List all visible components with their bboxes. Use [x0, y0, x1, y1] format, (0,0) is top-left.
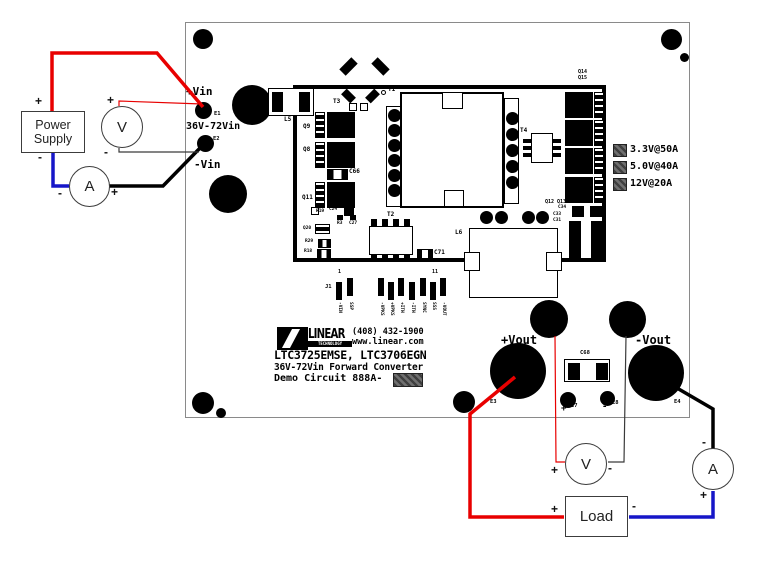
- rating-12v: 12V@20A: [630, 179, 672, 189]
- l5-label: L5: [284, 117, 291, 123]
- j1-pin: [440, 278, 446, 296]
- t1-pin: [506, 160, 519, 173]
- r18-resistor: [317, 249, 331, 259]
- t4-lead: [552, 146, 561, 150]
- j1-pin-name: -VIN: [337, 302, 342, 313]
- t1-pin: [506, 112, 519, 125]
- t2-pad: [404, 219, 410, 226]
- t4-lead: [523, 146, 532, 150]
- c66-capacitor: [327, 169, 348, 180]
- website-label: www.linear.com: [352, 338, 424, 347]
- rating-5v: 5.0V@40A: [630, 162, 678, 172]
- r29-label: R29: [305, 240, 313, 245]
- t2-pad: [393, 255, 399, 262]
- t4-lead: [523, 153, 532, 157]
- via-top-right: [680, 53, 689, 62]
- t2-pad: [382, 255, 388, 262]
- mounting-hole-top-left: [193, 29, 213, 49]
- t4-lead: [523, 139, 532, 143]
- e7-plus-sign: +: [561, 405, 566, 414]
- description-label: 36V-72Vin Forward Converter: [274, 363, 423, 373]
- t1-bottom-tab: [444, 190, 464, 207]
- logo-slash: [282, 329, 300, 348]
- j1-pin: [430, 282, 436, 300]
- e8-minus-sign: -: [602, 403, 607, 412]
- c33-label: C33: [553, 213, 561, 218]
- c66-label: C66: [349, 169, 360, 175]
- c27-capacitor: [350, 215, 356, 220]
- e8-label: E8: [612, 401, 619, 407]
- demo-revision-box: [393, 373, 423, 387]
- input-ammeter: A: [69, 166, 110, 207]
- j1-pin-name: -ITH: [410, 302, 415, 313]
- power-supply-box: Power Supply: [21, 111, 85, 153]
- load-plus-sign: +: [551, 503, 558, 515]
- via: [522, 211, 535, 224]
- t1-pin: [506, 176, 519, 189]
- t4-lead: [552, 153, 561, 157]
- load-label: Load: [580, 508, 613, 525]
- t1-top-tab: [442, 92, 463, 109]
- t2-label: T2: [387, 212, 394, 218]
- j1-pin: [347, 278, 353, 296]
- input-capacitor: [232, 85, 272, 125]
- input-voltmeter-label: V: [117, 119, 127, 136]
- via: [480, 211, 493, 224]
- j1-label: J1: [325, 285, 332, 291]
- supply-plus-sign: +: [35, 95, 42, 107]
- j1-pin-name: +VPKS: [389, 302, 394, 316]
- j1-pin-name: +ITH: [399, 302, 404, 313]
- e1-label: E1: [214, 112, 221, 118]
- rating-swatch: [613, 161, 627, 174]
- input-voltmeter-minus: -: [104, 146, 108, 158]
- logo-linear-text: LINEAR: [308, 328, 345, 341]
- t2-pad: [404, 255, 410, 262]
- c27-label: C27: [349, 222, 357, 227]
- q9-pads: [315, 112, 325, 138]
- t2-pad: [371, 255, 377, 262]
- vout-minus-label: -Vout: [635, 334, 671, 346]
- j1-pin: [388, 282, 394, 300]
- rating-swatch: [613, 178, 627, 191]
- l6-tab-right: [546, 252, 562, 271]
- vin-plus-label: +Vin: [186, 86, 213, 97]
- j1-pin-name: SYNC: [421, 302, 426, 313]
- l5-pad-left: [272, 92, 283, 112]
- t4-label: T4: [520, 128, 527, 134]
- input-capacitor-2: [209, 175, 247, 213]
- phone-label: (408) 432-1900: [352, 328, 424, 337]
- t4-ic: [531, 133, 553, 163]
- power-supply-label-1: Power: [35, 118, 70, 132]
- output-mosfet: [565, 120, 593, 146]
- output-voltmeter-minus: -: [608, 462, 612, 474]
- input-ammeter-label: A: [84, 178, 94, 195]
- vin-minus-label: -Vin: [194, 159, 221, 170]
- e7-label: E7: [571, 404, 578, 410]
- e3-label: E3: [489, 400, 498, 406]
- load-box: Load: [565, 496, 628, 537]
- inductor-l6: [469, 228, 558, 298]
- t1-pin: [506, 128, 519, 141]
- output-ammeter-label: A: [708, 461, 718, 478]
- mounting-hole-bottom-left: [192, 392, 214, 414]
- e3-terminal: [490, 343, 546, 399]
- r29-resistor: [318, 239, 331, 248]
- input-voltmeter: V: [101, 106, 143, 148]
- demo-circuit-label: Demo Circuit 888A-: [274, 374, 382, 384]
- supply-positive-wire: [52, 53, 203, 111]
- e2-label: E2: [213, 137, 220, 143]
- j1-pin: [409, 282, 415, 300]
- q9-mosfet: [327, 112, 355, 138]
- input-ammeter-minus: -: [58, 187, 62, 199]
- output-ammeter-minus: -: [702, 436, 706, 448]
- j1-pin-name: SSS: [431, 302, 436, 310]
- e4-label: E4: [673, 400, 682, 406]
- t4-lead: [552, 139, 561, 143]
- input-ammeter-plus: +: [111, 186, 118, 198]
- supply-negative-wire: [53, 152, 69, 186]
- t2-pad: [371, 219, 377, 226]
- t1-pin: [506, 144, 519, 157]
- rating-swatch: [613, 144, 627, 157]
- output-mosfet: [565, 92, 593, 118]
- c71-label: C71: [434, 250, 445, 256]
- c71-capacitor: [417, 249, 433, 259]
- q8-pads: [315, 142, 325, 168]
- part-numbers-label: LTC3725EMSE, LTC3706EGN: [274, 350, 426, 362]
- rating-3v3: 3.3V@50A: [630, 145, 678, 155]
- q20-label: Q20: [303, 227, 311, 232]
- output-voltmeter: V: [565, 443, 607, 485]
- c68-label: C68: [580, 351, 590, 357]
- q8-label: Q8: [303, 147, 310, 153]
- e2-terminal: [197, 135, 214, 152]
- via: [495, 211, 508, 224]
- q12-mosfet: [572, 206, 584, 217]
- c31-label: C31: [553, 219, 561, 224]
- supply-minus-sign: -: [38, 151, 42, 163]
- q13-mosfet: [590, 206, 602, 217]
- q11-label: Q11: [302, 195, 313, 201]
- output-mosfet-pads: [594, 120, 604, 146]
- output-mosfet-pads: [594, 148, 604, 174]
- t1-label: T1: [388, 87, 395, 93]
- demo-board-test-setup-diagram: +Vin E1 36V-72Vin E2 -Vin L5 T3 Q9 Q8 C6…: [0, 0, 777, 569]
- c24-label: C24: [329, 208, 337, 213]
- e4-terminal: [628, 345, 684, 401]
- t3-pad-2: [360, 103, 368, 111]
- r3-resistor: [337, 215, 343, 220]
- t2-ic: [369, 226, 413, 255]
- via-bottom-left: [216, 408, 226, 418]
- c68-pad-left: [568, 363, 580, 380]
- t2-pad: [382, 219, 388, 226]
- input-voltmeter-plus: +: [107, 94, 114, 106]
- t2-pad: [393, 219, 399, 226]
- c68-pad-right: [596, 363, 608, 380]
- r18-label: R18: [304, 250, 312, 255]
- r19-label: R19: [316, 210, 324, 215]
- l6-label: L6: [455, 230, 462, 236]
- j1-pin-name: -VOUT: [441, 302, 446, 316]
- output-mosfet-pads: [594, 92, 604, 118]
- output-ammeter: A: [692, 448, 734, 490]
- output-voltmeter-label: V: [581, 456, 591, 473]
- output-voltmeter-plus: +: [551, 464, 558, 476]
- output-ammeter-plus: +: [700, 489, 707, 501]
- j1-pin1-label: 1: [338, 270, 341, 275]
- logo-technology-text: TECHNOLOGY: [318, 342, 342, 346]
- e1-terminal: [195, 102, 212, 119]
- j1-pin11-label: 11: [432, 270, 438, 275]
- mounting-hole-top-right: [661, 29, 682, 50]
- q15-label: Q15: [578, 76, 587, 81]
- t3-label: T3: [333, 99, 340, 105]
- output-via: [453, 391, 475, 413]
- load-minus-sign: -: [632, 500, 636, 512]
- l5-pad-right: [299, 92, 310, 112]
- q9-label: Q9: [303, 124, 310, 130]
- j1-pin-name: SSP: [348, 302, 353, 310]
- j1-pin-name: -VPKS: [379, 302, 384, 316]
- output-capacitor-bank: [591, 221, 603, 261]
- t3-pad-1: [349, 103, 357, 111]
- c34-label: C34: [558, 206, 566, 211]
- q8-mosfet: [327, 142, 355, 168]
- q11-mosfet: [327, 182, 355, 208]
- l6-tab-left: [464, 252, 480, 271]
- output-capacitor-bank: [569, 221, 581, 261]
- t1-marker: [381, 90, 386, 95]
- output-mosfet: [565, 148, 593, 174]
- j1-pin: [336, 282, 342, 300]
- output-mosfet: [565, 177, 593, 203]
- q11-pads: [315, 182, 325, 208]
- q20-ic: [315, 224, 330, 234]
- linear-logo-icon: [277, 327, 308, 350]
- j1-pin: [378, 278, 384, 296]
- j1-pin: [420, 278, 426, 296]
- j1-pin: [398, 278, 404, 296]
- vout-plus-label: +Vout: [501, 334, 537, 346]
- r3-label: R3: [337, 222, 342, 227]
- power-supply-label-2: Supply: [34, 132, 72, 146]
- vin-range-label: 36V-72Vin: [186, 122, 240, 132]
- via: [536, 211, 549, 224]
- output-mosfet-pads: [594, 177, 604, 203]
